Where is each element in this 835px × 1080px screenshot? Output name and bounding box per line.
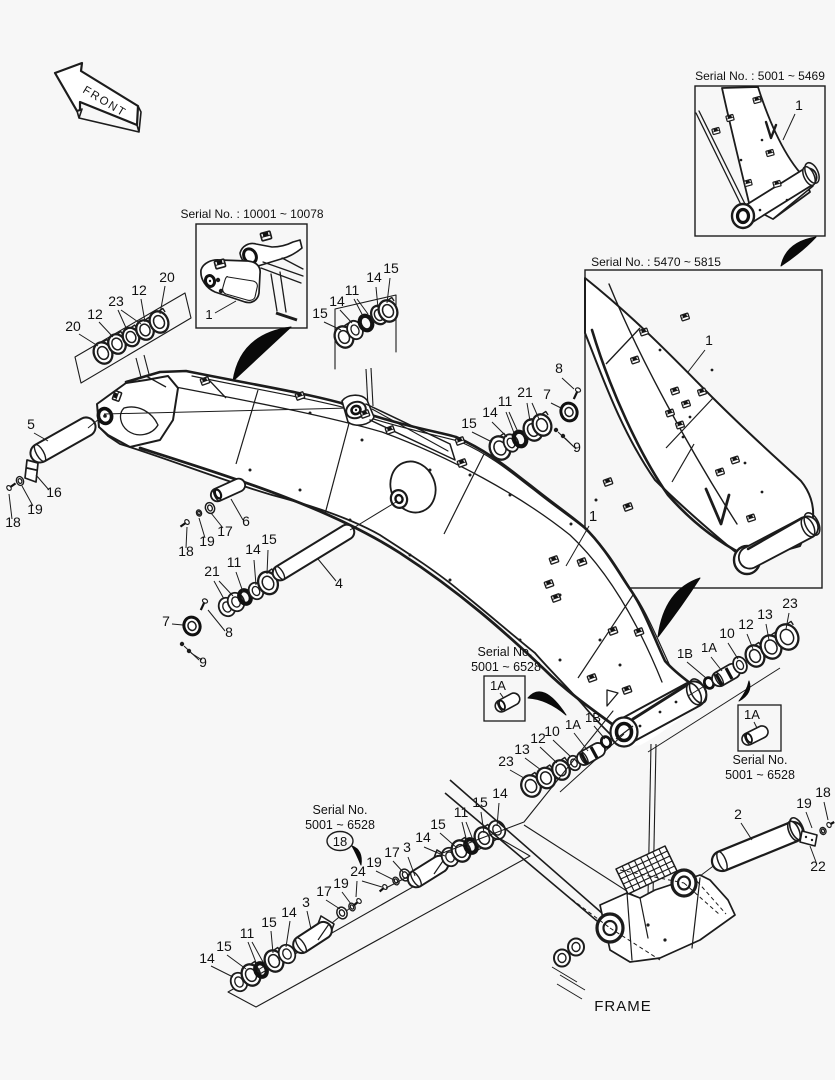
svg-text:23: 23 (498, 753, 514, 769)
svg-text:17: 17 (384, 844, 400, 860)
svg-text:5001 ~ 6528: 5001 ~ 6528 (471, 660, 541, 674)
svg-text:16: 16 (46, 484, 62, 500)
svg-text:3: 3 (403, 839, 411, 855)
svg-text:5001 ~ 6528: 5001 ~ 6528 (725, 768, 795, 782)
svg-text:Serial No. : 5470 ~ 5815: Serial No. : 5470 ~ 5815 (591, 255, 721, 269)
svg-text:1: 1 (705, 332, 713, 348)
svg-text:1A: 1A (744, 707, 760, 722)
svg-text:24: 24 (350, 863, 366, 879)
svg-text:14: 14 (366, 269, 382, 285)
svg-text:11: 11 (227, 554, 242, 570)
svg-text:1: 1 (205, 307, 212, 322)
svg-text:1A: 1A (565, 717, 581, 732)
svg-text:14: 14 (415, 829, 431, 845)
svg-text:14: 14 (482, 404, 498, 420)
svg-text:14: 14 (245, 541, 261, 557)
svg-text:15: 15 (312, 305, 328, 321)
svg-text:5: 5 (27, 416, 35, 432)
svg-text:15: 15 (383, 260, 399, 276)
svg-text:8: 8 (225, 624, 233, 640)
svg-text:17: 17 (217, 523, 233, 539)
svg-text:4: 4 (335, 575, 343, 591)
svg-text:23: 23 (108, 293, 124, 309)
svg-text:18: 18 (5, 514, 21, 530)
svg-text:1A: 1A (701, 640, 717, 655)
svg-text:20: 20 (159, 269, 175, 285)
svg-text:19: 19 (333, 875, 349, 891)
svg-text:7: 7 (162, 613, 170, 629)
svg-text:12: 12 (738, 616, 754, 632)
svg-text:7: 7 (543, 386, 551, 402)
svg-text:14: 14 (199, 950, 215, 966)
svg-text:1: 1 (589, 508, 597, 525)
svg-text:6: 6 (242, 513, 250, 529)
svg-text:Serial No. : 5001 ~ 5469: Serial No. : 5001 ~ 5469 (695, 69, 825, 83)
svg-text:15: 15 (430, 816, 446, 832)
svg-text:1: 1 (795, 97, 803, 113)
svg-text:5001 ~ 6528: 5001 ~ 6528 (305, 818, 375, 832)
svg-text:Serial No.: Serial No. (478, 645, 533, 659)
svg-text:Serial No.: Serial No. (733, 753, 788, 767)
svg-text:1B: 1B (585, 710, 601, 725)
svg-text:12: 12 (131, 282, 147, 298)
svg-text:23: 23 (782, 595, 798, 611)
svg-text:19: 19 (366, 854, 382, 870)
svg-text:19: 19 (796, 795, 812, 811)
svg-text:13: 13 (757, 606, 773, 622)
svg-text:2: 2 (734, 806, 742, 822)
svg-text:Serial No.: Serial No. (313, 803, 368, 817)
svg-text:22: 22 (810, 858, 826, 874)
svg-text:11: 11 (498, 393, 513, 409)
svg-text:10: 10 (544, 723, 560, 739)
svg-text:20: 20 (65, 318, 81, 334)
svg-text:11: 11 (240, 925, 255, 941)
svg-text:21: 21 (204, 563, 220, 579)
svg-text:11: 11 (345, 282, 360, 298)
svg-text:10: 10 (719, 625, 735, 641)
svg-text:1A: 1A (490, 678, 506, 693)
svg-text:15: 15 (261, 914, 277, 930)
svg-text:15: 15 (216, 938, 232, 954)
svg-text:19: 19 (199, 533, 215, 549)
svg-text:8: 8 (555, 360, 563, 376)
svg-text:14: 14 (492, 785, 508, 801)
svg-text:9: 9 (199, 654, 207, 670)
svg-text:3: 3 (302, 894, 310, 910)
svg-text:FRAME: FRAME (594, 998, 652, 1015)
svg-text:19: 19 (27, 501, 43, 517)
svg-text:14: 14 (329, 293, 345, 309)
svg-text:1B: 1B (677, 646, 693, 661)
svg-text:18: 18 (333, 834, 347, 849)
svg-text:15: 15 (261, 531, 277, 547)
svg-text:Serial No. : 10001 ~ 10078: Serial No. : 10001 ~ 10078 (180, 207, 323, 221)
svg-text:15: 15 (461, 415, 477, 431)
svg-text:21: 21 (517, 384, 533, 400)
svg-text:13: 13 (514, 741, 530, 757)
svg-text:12: 12 (87, 306, 103, 322)
svg-text:18: 18 (815, 784, 831, 800)
svg-text:14: 14 (281, 904, 297, 920)
svg-text:17: 17 (316, 883, 332, 899)
